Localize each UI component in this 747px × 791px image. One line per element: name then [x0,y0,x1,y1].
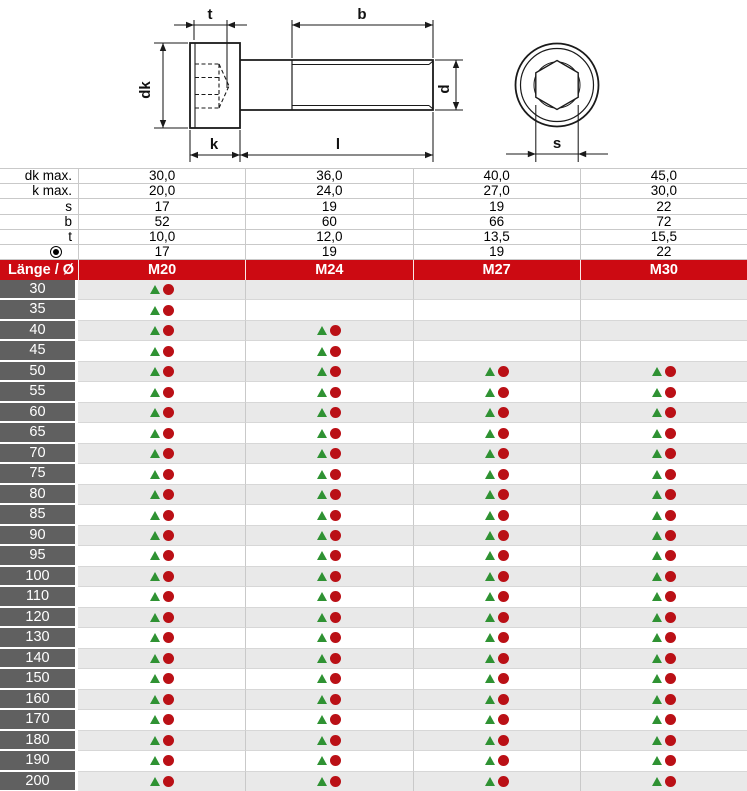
spec-row-label [0,245,78,260]
availability-cell [413,526,580,546]
triangle-marker-icon [150,429,160,438]
spec-row: dk max.30,036,040,045,0 [0,169,747,184]
length-row: 35 [0,300,747,320]
triangle-marker-icon [150,511,160,520]
availability-cell [580,608,747,628]
availability-markers [485,673,509,684]
availability-markers [317,612,341,623]
availability-cell [580,587,747,607]
availability-markers [317,550,341,561]
length-label: 180 [0,731,78,751]
triangle-marker-icon [652,490,662,499]
availability-markers [652,735,676,746]
triangle-marker-icon [652,551,662,560]
circle-marker-icon [665,407,676,418]
spec-table: dk max.30,036,040,045,0k max.20,024,027,… [0,168,747,260]
circle-marker-icon [498,428,509,439]
circle-marker-icon [665,714,676,725]
availability-cell [580,444,747,464]
circle-marker-icon [330,407,341,418]
spec-value: 66 [413,215,580,230]
length-row: 80 [0,485,747,505]
circle-marker-icon [163,284,174,295]
availability-cell [580,321,747,341]
technical-drawing: t b dk k l d s [0,0,747,168]
availability-markers [317,653,341,664]
availability-cell [245,300,412,320]
availability-cell [413,280,580,300]
circle-marker-icon [665,755,676,766]
spec-value: 17 [78,199,245,214]
availability-markers [485,591,509,602]
spec-value: 60 [245,215,412,230]
circle-marker-icon [665,448,676,459]
spec-value: 12,0 [245,230,412,245]
circle-marker-icon [330,591,341,602]
triangle-marker-icon [317,429,327,438]
availability-markers [317,530,341,541]
circle-marker-icon [498,469,509,480]
availability-cell [78,526,245,546]
circle-marker-icon [330,489,341,500]
spec-value: 15,5 [580,230,747,245]
availability-cell [580,464,747,484]
availability-markers [150,673,174,684]
triangle-marker-icon [485,633,495,642]
availability-markers [485,489,509,500]
circle-marker-icon [498,714,509,725]
availability-markers [150,776,174,787]
circle-marker-icon [330,428,341,439]
availability-markers [485,530,509,541]
availability-cell [245,690,412,710]
availability-cell [580,341,747,361]
availability-markers [150,612,174,623]
circle-marker-icon [665,653,676,664]
triangle-marker-icon [150,285,160,294]
triangle-marker-icon [317,572,327,581]
availability-markers [150,448,174,459]
availability-markers [317,448,341,459]
availability-markers [150,530,174,541]
availability-markers [652,387,676,398]
availability-cell [78,382,245,402]
availability-cell [413,341,580,361]
availability-cell [413,485,580,505]
length-label: 50 [0,362,78,382]
availability-cell [580,362,747,382]
availability-markers [485,653,509,664]
circle-marker-icon [498,448,509,459]
circle-marker-icon [498,591,509,602]
triangle-marker-icon [485,592,495,601]
availability-cell [78,628,245,648]
availability-cell [413,403,580,423]
circle-marker-icon [665,735,676,746]
length-label: 150 [0,669,78,689]
dim-label-t: t [208,6,213,23]
triangle-marker-icon [485,490,495,499]
triangle-marker-icon [317,388,327,397]
availability-cell [245,485,412,505]
length-label: 120 [0,608,78,628]
availability-markers [652,673,676,684]
availability-cell [78,710,245,730]
availability-cell [245,751,412,771]
availability-markers [150,694,174,705]
circle-marker-icon [330,776,341,787]
circle-marker-icon [330,510,341,521]
circle-marker-icon [330,714,341,725]
spec-value: 40,0 [413,169,580,184]
size-col-m30: M30 [580,260,747,280]
availability-cell [78,423,245,443]
availability-markers [317,673,341,684]
triangle-marker-icon [652,674,662,683]
availability-cell [245,362,412,382]
availability-cell [413,567,580,587]
spec-row: b52606672 [0,215,747,230]
circle-marker-icon [498,776,509,787]
length-row: 100 [0,567,747,587]
availability-markers [485,407,509,418]
availability-cell [413,669,580,689]
availability-markers [652,694,676,705]
length-row: 130 [0,628,747,648]
triangle-marker-icon [485,470,495,479]
length-label: 130 [0,628,78,648]
availability-markers [485,612,509,623]
circle-marker-icon [330,469,341,480]
availability-markers [150,305,174,316]
circle-marker-icon [498,612,509,623]
length-row: 60 [0,403,747,423]
triangle-marker-icon [652,388,662,397]
circle-marker-icon [498,366,509,377]
triangle-marker-icon [485,551,495,560]
availability-cell [78,280,245,300]
availability-cell [78,567,245,587]
availability-markers [150,571,174,582]
length-row: 190 [0,751,747,771]
circle-marker-icon [330,653,341,664]
triangle-marker-icon [150,408,160,417]
circle-marker-icon [330,366,341,377]
availability-cell [413,300,580,320]
length-row: 65 [0,423,747,443]
length-row: 70 [0,444,747,464]
triangle-marker-icon [317,408,327,417]
triangle-marker-icon [652,756,662,765]
length-row: 40 [0,321,747,341]
size-col-m27: M27 [413,260,580,280]
availability-markers [652,530,676,541]
availability-markers [485,694,509,705]
triangle-marker-icon [652,695,662,704]
availability-cell [78,751,245,771]
availability-cell [245,772,412,791]
circle-marker-icon [498,632,509,643]
dim-label-s: s [553,135,561,152]
triangle-marker-icon [150,367,160,376]
dim-label-k: k [210,136,219,153]
availability-cell [580,382,747,402]
spec-value: 72 [580,215,747,230]
availability-cell [78,341,245,361]
availability-cell [245,669,412,689]
availability-markers [652,550,676,561]
triangle-marker-icon [485,449,495,458]
availability-cell [580,505,747,525]
availability-cell [580,731,747,751]
availability-markers [150,346,174,357]
triangle-marker-icon [150,306,160,315]
availability-markers [652,776,676,787]
circle-marker-icon [498,571,509,582]
length-row: 50 [0,362,747,382]
availability-markers [485,755,509,766]
circle-marker-icon [163,571,174,582]
length-row: 45 [0,341,747,361]
availability-cell [413,649,580,669]
spec-value: 19 [245,245,412,260]
availability-cell [78,300,245,320]
availability-cell [413,423,580,443]
availability-markers [317,407,341,418]
circle-marker-icon [665,612,676,623]
length-row: 110 [0,587,747,607]
spec-value: 27,0 [413,184,580,199]
triangle-marker-icon [317,633,327,642]
size-col-m24: M24 [245,260,412,280]
spec-row-label: k max. [0,184,78,199]
length-label: 170 [0,710,78,730]
triangle-marker-icon [652,777,662,786]
availability-markers [317,387,341,398]
availability-markers [317,735,341,746]
circle-marker-icon [163,550,174,561]
circle-marker-icon [498,530,509,541]
length-row: 200 [0,772,747,791]
availability-markers [485,469,509,480]
circle-marker-icon [330,325,341,336]
availability-cell [245,505,412,525]
availability-cell [78,546,245,566]
circle-marker-icon [163,632,174,643]
circle-marker-icon [163,489,174,500]
availability-cell [78,505,245,525]
circle-marker-icon [665,673,676,684]
availability-markers [652,489,676,500]
availability-markers [150,428,174,439]
availability-cell [245,464,412,484]
length-row: 85 [0,505,747,525]
availability-cell [413,628,580,648]
availability-cell [413,362,580,382]
length-row: 120 [0,608,747,628]
triangle-marker-icon [150,572,160,581]
availability-markers [652,714,676,725]
circle-marker-icon [665,366,676,377]
availability-markers [652,591,676,602]
triangle-marker-icon [652,572,662,581]
fisheye-icon [50,246,62,258]
availability-markers [485,735,509,746]
spec-row-label: b [0,215,78,230]
circle-marker-icon [163,653,174,664]
availability-markers [150,489,174,500]
triangle-marker-icon [485,736,495,745]
circle-marker-icon [665,632,676,643]
circle-marker-icon [330,755,341,766]
availability-markers [317,755,341,766]
circle-marker-icon [163,612,174,623]
availability-cell [580,423,747,443]
spec-value: 22 [580,199,747,214]
circle-marker-icon [330,550,341,561]
length-label: 30 [0,280,78,300]
circle-marker-icon [163,776,174,787]
length-label: 80 [0,485,78,505]
triangle-marker-icon [150,449,160,458]
availability-markers [150,550,174,561]
triangle-marker-icon [317,674,327,683]
availability-cell [580,403,747,423]
spec-value: 17 [78,245,245,260]
triangle-marker-icon [317,449,327,458]
availability-cell [413,382,580,402]
availability-cell [580,669,747,689]
availability-markers [150,325,174,336]
triangle-marker-icon [485,756,495,765]
availability-cell [580,710,747,730]
triangle-marker-icon [652,613,662,622]
availability-markers [150,735,174,746]
dim-label-l: l [336,136,340,153]
spec-value: 30,0 [580,184,747,199]
length-row: 75 [0,464,747,484]
availability-markers [485,632,509,643]
availability-markers [150,407,174,418]
circle-marker-icon [498,694,509,705]
triangle-marker-icon [652,449,662,458]
length-label: 65 [0,423,78,443]
triangle-marker-icon [485,715,495,724]
availability-markers [317,591,341,602]
circle-marker-icon [498,407,509,418]
circle-marker-icon [665,530,676,541]
availability-cell [245,280,412,300]
availability-markers [485,714,509,725]
availability-markers [485,428,509,439]
length-row: 150 [0,669,747,689]
triangle-marker-icon [652,654,662,663]
triangle-marker-icon [485,613,495,622]
circle-marker-icon [330,735,341,746]
length-label: 45 [0,341,78,361]
triangle-marker-icon [317,490,327,499]
spec-value: 24,0 [245,184,412,199]
circle-marker-icon [665,428,676,439]
length-row: 55 [0,382,747,402]
availability-markers [652,632,676,643]
circle-marker-icon [163,714,174,725]
triangle-marker-icon [317,592,327,601]
length-label: 85 [0,505,78,525]
triangle-marker-icon [485,511,495,520]
circle-marker-icon [498,489,509,500]
circle-marker-icon [163,469,174,480]
length-row: 90 [0,526,747,546]
circle-marker-icon [163,305,174,316]
dim-label-b: b [357,6,366,23]
availability-cell [413,587,580,607]
length-label: 190 [0,751,78,771]
availability-cell [245,587,412,607]
triangle-marker-icon [317,511,327,520]
availability-markers [150,632,174,643]
triangle-marker-icon [150,613,160,622]
availability-cell [580,690,747,710]
availability-markers [485,571,509,582]
availability-markers [150,591,174,602]
availability-markers [150,510,174,521]
availability-cell [78,772,245,791]
triangle-marker-icon [652,429,662,438]
circle-marker-icon [498,510,509,521]
circle-marker-icon [665,387,676,398]
triangle-marker-icon [150,388,160,397]
circle-marker-icon [163,346,174,357]
availability-markers [485,510,509,521]
availability-cell [580,485,747,505]
circle-marker-icon [498,653,509,664]
availability-markers [652,612,676,623]
spec-value: 36,0 [245,169,412,184]
circle-marker-icon [330,694,341,705]
circle-marker-icon [163,407,174,418]
circle-marker-icon [498,387,509,398]
circle-marker-icon [163,530,174,541]
circle-marker-icon [163,591,174,602]
availability-cell [245,341,412,361]
availability-markers [317,469,341,480]
availability-cell [580,649,747,669]
availability-cell [413,772,580,791]
spec-row: 17191922 [0,245,747,260]
availability-cell [245,403,412,423]
circle-marker-icon [163,673,174,684]
triangle-marker-icon [652,511,662,520]
triangle-marker-icon [652,408,662,417]
availability-cell [245,382,412,402]
spec-row: k max.20,024,027,030,0 [0,184,747,199]
circle-marker-icon [330,530,341,541]
availability-cell [580,567,747,587]
availability-cell [413,710,580,730]
length-label: 200 [0,772,78,791]
availability-cell [413,731,580,751]
availability-cell [413,444,580,464]
availability-cell [580,546,747,566]
spec-row-label: t [0,230,78,245]
circle-marker-icon [665,571,676,582]
length-label: 95 [0,546,78,566]
triangle-marker-icon [150,715,160,724]
availability-cell [245,608,412,628]
availability-markers [150,284,174,295]
triangle-marker-icon [150,531,160,540]
